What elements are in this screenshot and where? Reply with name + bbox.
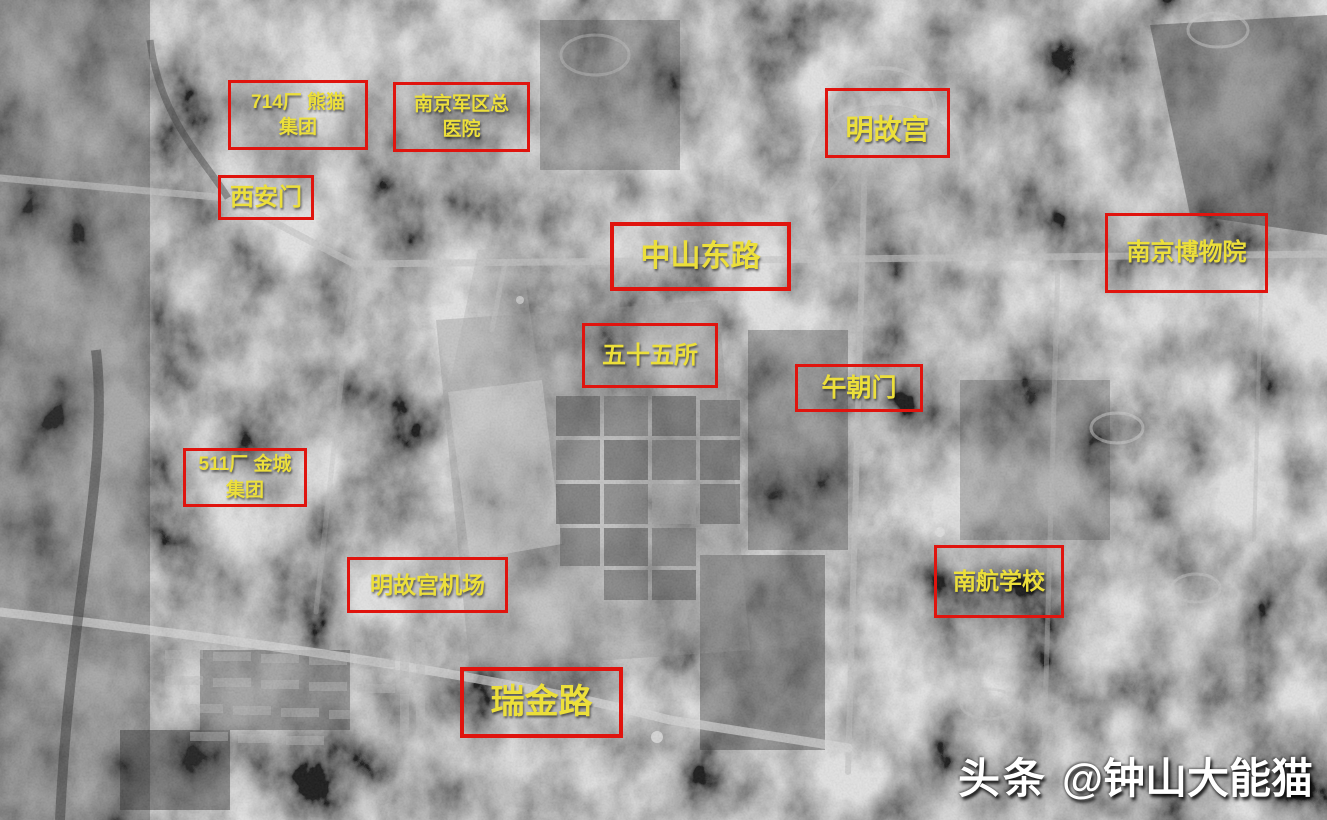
annotation-box-zhongshan-east-road: 中山东路: [610, 222, 791, 291]
annotation-text: 午朝门: [821, 372, 896, 405]
annotated-aerial-map: 714厂 熊猫 集团 南京军区总 医院 西安门 明故宫 中山东路 南京博物院 五…: [0, 0, 1327, 820]
annotation-text: 明故宫机场: [370, 570, 485, 600]
annotation-box-nuaa-school: 南航学校: [934, 545, 1064, 618]
annotation-text: 明故宫: [845, 112, 929, 149]
annotation-box-ming-palace-airport: 明故宫机场: [347, 557, 508, 613]
annotation-box-wuchao-gate: 午朝门: [795, 364, 923, 412]
annotation-box-nanjing-museum: 南京博物院: [1105, 213, 1268, 293]
watermark-handle: @钟山大能猫: [1062, 745, 1313, 806]
annotation-box-xian-gate: 西安门: [218, 175, 314, 220]
aerial-photo: [0, 0, 1327, 820]
watermark-brand: 头条: [958, 745, 1048, 806]
annotation-box-nanjing-military-region-general-hospital: 南京军区总 医院: [393, 82, 530, 152]
annotation-text: 瑞金路: [491, 680, 593, 725]
annotation-text: 西安门: [230, 182, 302, 214]
watermark: 头条 @钟山大能猫: [958, 745, 1313, 806]
annotation-text: 中山东路: [641, 237, 761, 277]
annotation-text: 南航学校: [953, 566, 1045, 596]
annotation-text: 511厂 金城 集团: [199, 452, 292, 502]
annotation-box-ming-palace: 明故宫: [825, 88, 950, 158]
annotation-text: 714厂 熊猫 集团: [251, 90, 345, 140]
annotation-box-factory-511-jincheng-group: 511厂 金城 集团: [183, 448, 307, 507]
annotation-box-ruijin-road: 瑞金路: [460, 667, 623, 738]
annotation-text: 五十五所: [602, 340, 698, 372]
annotation-text: 南京博物院: [1127, 237, 1247, 269]
annotation-box-factory-714-panda-group: 714厂 熊猫 集团: [228, 80, 368, 150]
annotation-box-institute-55: 五十五所: [582, 323, 718, 388]
annotation-text: 南京军区总 医院: [414, 92, 509, 142]
photo-grain: [0, 0, 1327, 820]
